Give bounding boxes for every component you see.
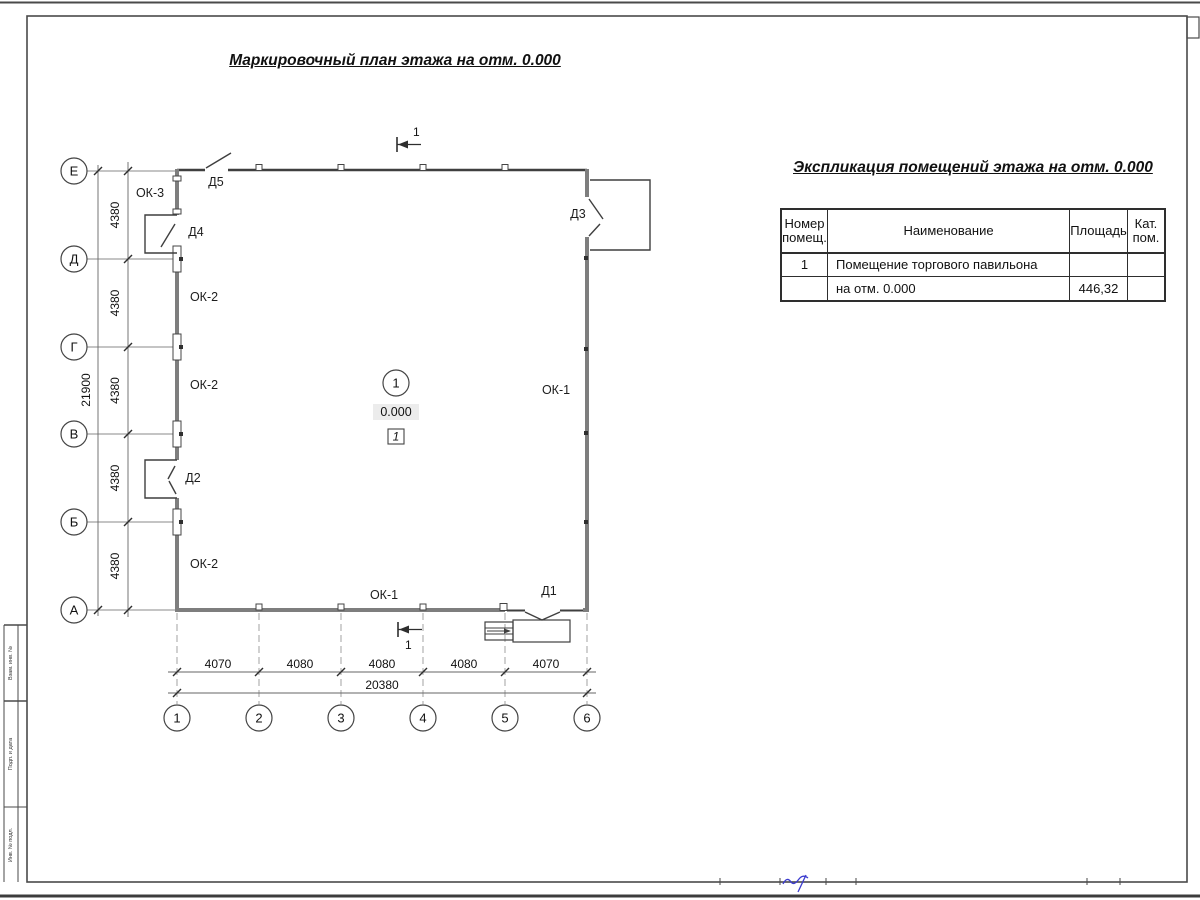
room-tag: 1 xyxy=(393,430,400,444)
cell-category xyxy=(1127,277,1164,300)
dimension-label: 4080 xyxy=(451,657,478,671)
cell-area: 446,32 xyxy=(1069,277,1127,300)
elevation-mark: 0.000 xyxy=(380,405,411,419)
frame-margin-labels: Взам. инв. № Подп. и дата Инв. № подл. xyxy=(8,646,14,862)
row-axis-label: Е xyxy=(70,164,79,179)
col-axis-label: 6 xyxy=(583,711,590,726)
window-label: ОК-3 xyxy=(136,186,164,200)
dimension-label: 4080 xyxy=(287,657,314,671)
explication-title: Экспликация помещений этажа на отм. 0.00… xyxy=(793,159,1143,177)
row-axis-label: Б xyxy=(70,515,79,530)
section-mark-top: 1 xyxy=(397,125,421,152)
cell-name: на отм. 0.000 xyxy=(827,277,1069,300)
header-category-line1: Кат. xyxy=(1135,217,1158,231)
header-room-number-line1: Номер xyxy=(784,217,824,231)
window-label: ОК-1 xyxy=(542,383,570,397)
row-axis-label: А xyxy=(70,603,79,618)
window-label: ОК-2 xyxy=(190,290,218,304)
cell-area xyxy=(1069,254,1127,276)
dimension-label: 4080 xyxy=(369,657,396,671)
header-name: Наименование xyxy=(827,210,1069,252)
cell-room-number xyxy=(782,277,827,300)
section-mark-bottom: 1 xyxy=(398,622,422,652)
table-row: на отм. 0.000 446,32 xyxy=(782,276,1164,300)
col-axis-label: 2 xyxy=(255,711,262,726)
handwritten-signature xyxy=(783,875,808,892)
row-axis-lines xyxy=(87,171,177,610)
bottom-dimension-labels: 4070 4080 4080 4080 4070 20380 xyxy=(205,657,560,692)
floor-plan-drawing: Взам. инв. № Подп. и дата Инв. № подл. Е… xyxy=(0,0,1200,900)
dimension-label: 4380 xyxy=(108,377,122,404)
window-label: ОК-2 xyxy=(190,557,218,571)
drawing-sheet: Взам. инв. № Подп. и дата Инв. № подл. Е… xyxy=(0,0,1200,900)
dimension-label: 4380 xyxy=(108,289,122,316)
door-label: Д2 xyxy=(185,471,200,485)
section-number: 1 xyxy=(413,125,420,139)
wall-window-posts xyxy=(173,165,508,611)
margin-label: Подп. и дата xyxy=(8,737,14,770)
wall-axis-nubs xyxy=(179,256,588,524)
cell-name: Помещение торгового павильона xyxy=(827,254,1069,276)
margin-label: Инв. № подл. xyxy=(8,827,14,862)
door-label: Д1 xyxy=(541,584,556,598)
door-label: Д4 xyxy=(188,225,203,239)
col-axis-label: 3 xyxy=(337,711,344,726)
col-axis-numbers: 1 2 3 4 5 6 xyxy=(173,711,590,726)
col-axis-bubbles xyxy=(164,705,600,731)
window-label: ОК-1 xyxy=(370,588,398,602)
door-label: Д3 xyxy=(570,207,585,221)
opening-labels: ОК-3 Д5 Д4 ОК-2 ОК-2 Д2 ОК-2 Д3 ОК-1 ОК-… xyxy=(136,175,586,602)
table-row: 1 Помещение торгового павильона xyxy=(782,254,1164,276)
doors-and-porches xyxy=(145,153,650,642)
sheet-frame xyxy=(0,3,1200,897)
plan-title: Маркировочный план этажа на отм. 0.000 xyxy=(225,52,565,70)
dimension-total-label: 21900 xyxy=(79,373,93,407)
col-axis-label: 1 xyxy=(173,711,180,726)
header-category: Кат. пом. xyxy=(1127,210,1164,252)
col-axis-label: 5 xyxy=(501,711,508,726)
door-label: Д5 xyxy=(208,175,223,189)
window-label: ОК-2 xyxy=(190,378,218,392)
row-axis-label: В xyxy=(70,427,79,442)
dimension-label: 4070 xyxy=(533,657,560,671)
header-room-number: Номер помещ. xyxy=(782,210,827,252)
header-area: Площадь xyxy=(1069,210,1127,252)
cell-room-number: 1 xyxy=(782,254,827,276)
dimension-total-label: 20380 xyxy=(365,678,399,692)
header-room-number-line2: помещ. xyxy=(782,231,827,245)
dimension-label: 4380 xyxy=(108,464,122,491)
cell-category xyxy=(1127,254,1164,276)
row-axis-label: Г xyxy=(70,340,77,355)
dimension-label: 4070 xyxy=(205,657,232,671)
section-number: 1 xyxy=(405,638,412,652)
row-axis-letters: Е Д Г В Б А xyxy=(70,164,79,618)
margin-label: Взам. инв. № xyxy=(8,646,14,680)
header-category-line2: пом. xyxy=(1133,231,1160,245)
dimension-label: 4380 xyxy=(108,201,122,228)
col-axis-label: 4 xyxy=(419,711,426,726)
table-header-row: Номер помещ. Наименование Площадь Кат. п… xyxy=(782,210,1164,254)
room-number: 1 xyxy=(392,376,399,391)
walls xyxy=(177,169,589,612)
room-marker: 1 0.000 1 xyxy=(373,370,419,444)
row-axis-label: Д xyxy=(70,252,79,267)
dimension-label: 4380 xyxy=(108,552,122,579)
explication-table: Номер помещ. Наименование Площадь Кат. п… xyxy=(780,208,1166,302)
